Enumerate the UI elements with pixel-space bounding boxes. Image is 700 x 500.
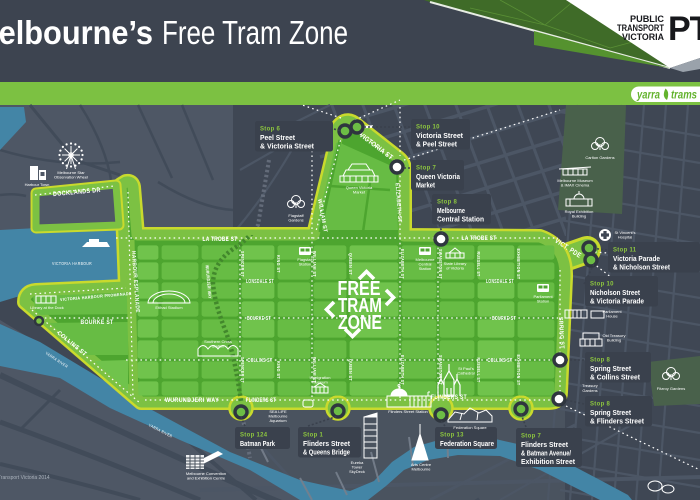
svg-text:& Queens Bridge: & Queens Bridge [303,448,350,457]
svg-text:Cathedral: Cathedral [457,371,474,376]
svg-text:EXHIBITION ST: EXHIBITION ST [516,249,521,280]
svg-text:Stop 13: Stop 13 [440,433,464,439]
svg-text:LONSDALE ST: LONSDALE ST [246,279,274,285]
svg-text:BOURKE ST: BOURKE ST [81,320,114,326]
svg-text:Building: Building [607,338,621,343]
svg-text:EXHIBITION ST: EXHIBITION ST [516,355,521,386]
svg-text:Batman Park: Batman Park [240,439,276,448]
svg-text:Stop 6: Stop 6 [260,127,280,133]
svg-text:WURUNDJERI WAY: WURUNDJERI WAY [165,398,219,404]
svg-text:Free Tram Zone: Free Tram Zone [162,14,348,51]
svg-text:LONSDALE ST: LONSDALE ST [486,279,514,285]
svg-text:Gardens: Gardens [288,218,303,223]
svg-text:Stop 8: Stop 8 [590,402,610,408]
svg-text:RUSSELL ST: RUSSELL ST [476,252,481,277]
svg-text:Stop 11: Stop 11 [613,248,637,254]
svg-text:SPENCER ST: SPENCER ST [240,251,245,277]
svg-text:Stop 7: Stop 7 [416,166,436,172]
svg-text:& Nicholson Street: & Nicholson Street [613,263,670,272]
svg-text:Station: Station [212,344,224,349]
svg-text:Station: Station [419,266,431,271]
svg-text:Station: Station [299,262,311,267]
svg-text:Stop 8: Stop 8 [437,200,457,206]
svg-text:Carlton Gardens: Carlton Gardens [585,155,614,160]
svg-text:Melbourne’s: Melbourne’s [0,14,153,51]
svg-text:& IMAX Cinema: & IMAX Cinema [561,183,590,188]
svg-text:LA TROBE ST: LA TROBE ST [462,236,497,242]
svg-text:WILLIAM ST: WILLIAM ST [312,251,317,277]
svg-text:BOURKE ST: BOURKE ST [492,316,516,322]
svg-text:Flinders Street Station: Flinders Street Station [388,409,428,414]
svg-text:ELIZABETH ST: ELIZABETH ST [400,249,405,279]
svg-text:and Exhibition Centre: and Exhibition Centre [187,476,226,481]
svg-text:Market: Market [353,190,366,195]
svg-text:of Victoria: of Victoria [446,266,464,271]
svg-text:© Public Transport Victoria 20: © Public Transport Victoria 2014 [0,474,50,481]
svg-text:SPENCER ST: SPENCER ST [240,357,245,383]
svg-text:& Flinders Street: & Flinders Street [590,417,644,426]
svg-text:& Victoria Parade: & Victoria Parade [590,297,644,306]
svg-text:PTV: PTV [668,10,700,48]
svg-text:BOURKE ST: BOURKE ST [247,316,271,322]
svg-text:& Victoria Street: & Victoria Street [260,142,314,151]
svg-text:Etihad Stadium: Etihad Stadium [155,305,183,310]
svg-text:KING ST: KING ST [276,255,281,273]
svg-text:VICTORIA: VICTORIA [622,32,664,42]
svg-text:House: House [606,314,618,319]
svg-text:Museum: Museum [312,380,328,385]
svg-text:Library at the Dock: Library at the Dock [30,305,64,310]
svg-text:Central Station: Central Station [437,215,484,224]
svg-text:COLLINS ST: COLLINS ST [488,358,513,364]
svg-text:Station: Station [537,299,549,304]
svg-text:& Peel Street: & Peel Street [416,140,457,149]
svg-text:yarra: yarra [636,90,660,102]
svg-text:Stop 10: Stop 10 [590,282,614,288]
svg-text:Stop 1: Stop 1 [303,433,323,439]
svg-text:Stop 10: Stop 10 [416,125,440,131]
svg-text:Aquarium: Aquarium [269,418,287,423]
svg-text:Exhibition Street: Exhibition Street [521,457,575,466]
svg-text:ELIZABETH ST: ELIZABETH ST [400,355,405,385]
svg-text:Stop 8: Stop 8 [590,358,610,364]
svg-text:Market: Market [416,181,435,190]
svg-text:VICTORIA HARBOUR: VICTORIA HARBOUR [52,261,92,266]
svg-text:LA TROBE ST: LA TROBE ST [203,237,238,243]
svg-text:Stop 124: Stop 124 [240,433,268,439]
svg-text:SkyDeck: SkyDeck [349,469,365,474]
svg-text:QUEEN ST: QUEEN ST [348,359,353,381]
svg-text:Federation Square: Federation Square [440,439,494,448]
svg-text:trams: trams [671,90,697,102]
svg-text:Melbourne: Melbourne [412,467,432,472]
svg-text:SWANSTON ST: SWANSTON ST [438,249,443,279]
svg-text:TreasuryGardens: TreasuryGardens [582,383,598,393]
svg-text:Fitzroy Gardens: Fitzroy Gardens [657,386,685,391]
svg-text:& Collins Street: & Collins Street [590,373,640,382]
svg-text:Federation Square: Federation Square [453,425,487,430]
svg-text:Observation Wheel: Observation Wheel [54,175,88,180]
svg-text:FLINDERS ST: FLINDERS ST [246,398,276,404]
svg-text:COLLINS ST: COLLINS ST [248,358,273,364]
svg-text:Building: Building [572,214,586,219]
svg-text:Harbour Town: Harbour Town [25,182,50,187]
svg-text:KING ST: KING ST [276,361,281,379]
svg-text:Stop 7: Stop 7 [521,434,541,440]
svg-text:QUEEN ST: QUEEN ST [348,253,353,275]
svg-text:Hospital: Hospital [618,235,633,240]
svg-text:RUSSELL ST: RUSSELL ST [476,358,481,383]
